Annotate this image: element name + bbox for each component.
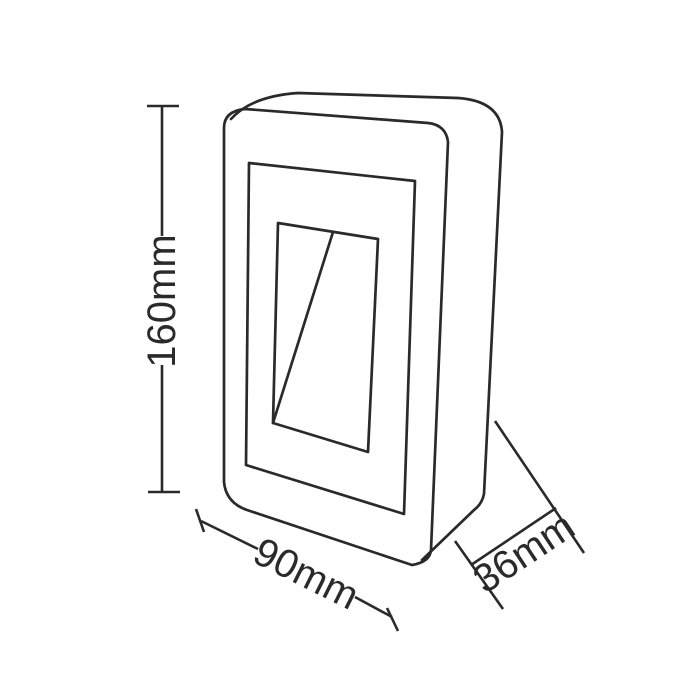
depth-dimension: 36mm <box>455 421 584 609</box>
depth-dim-label: 36mm <box>466 504 583 602</box>
width-dim-line-right <box>355 597 392 617</box>
device-front-face-outline <box>224 109 448 565</box>
height-dimension: 160mm <box>140 106 184 492</box>
front-panel-outline <box>246 163 415 514</box>
device-body <box>224 93 502 565</box>
window-diagonal-line <box>273 232 333 423</box>
height-dim-label: 160mm <box>140 234 184 367</box>
technical-drawing-canvas: 160mm 90mm 36mm <box>0 0 700 700</box>
dimension-drawing-svg: 160mm 90mm 36mm <box>0 0 700 700</box>
device-top-and-side-silhouette <box>231 93 502 560</box>
width-dim-right-tick <box>387 608 398 631</box>
width-dim-line-left <box>201 521 258 549</box>
